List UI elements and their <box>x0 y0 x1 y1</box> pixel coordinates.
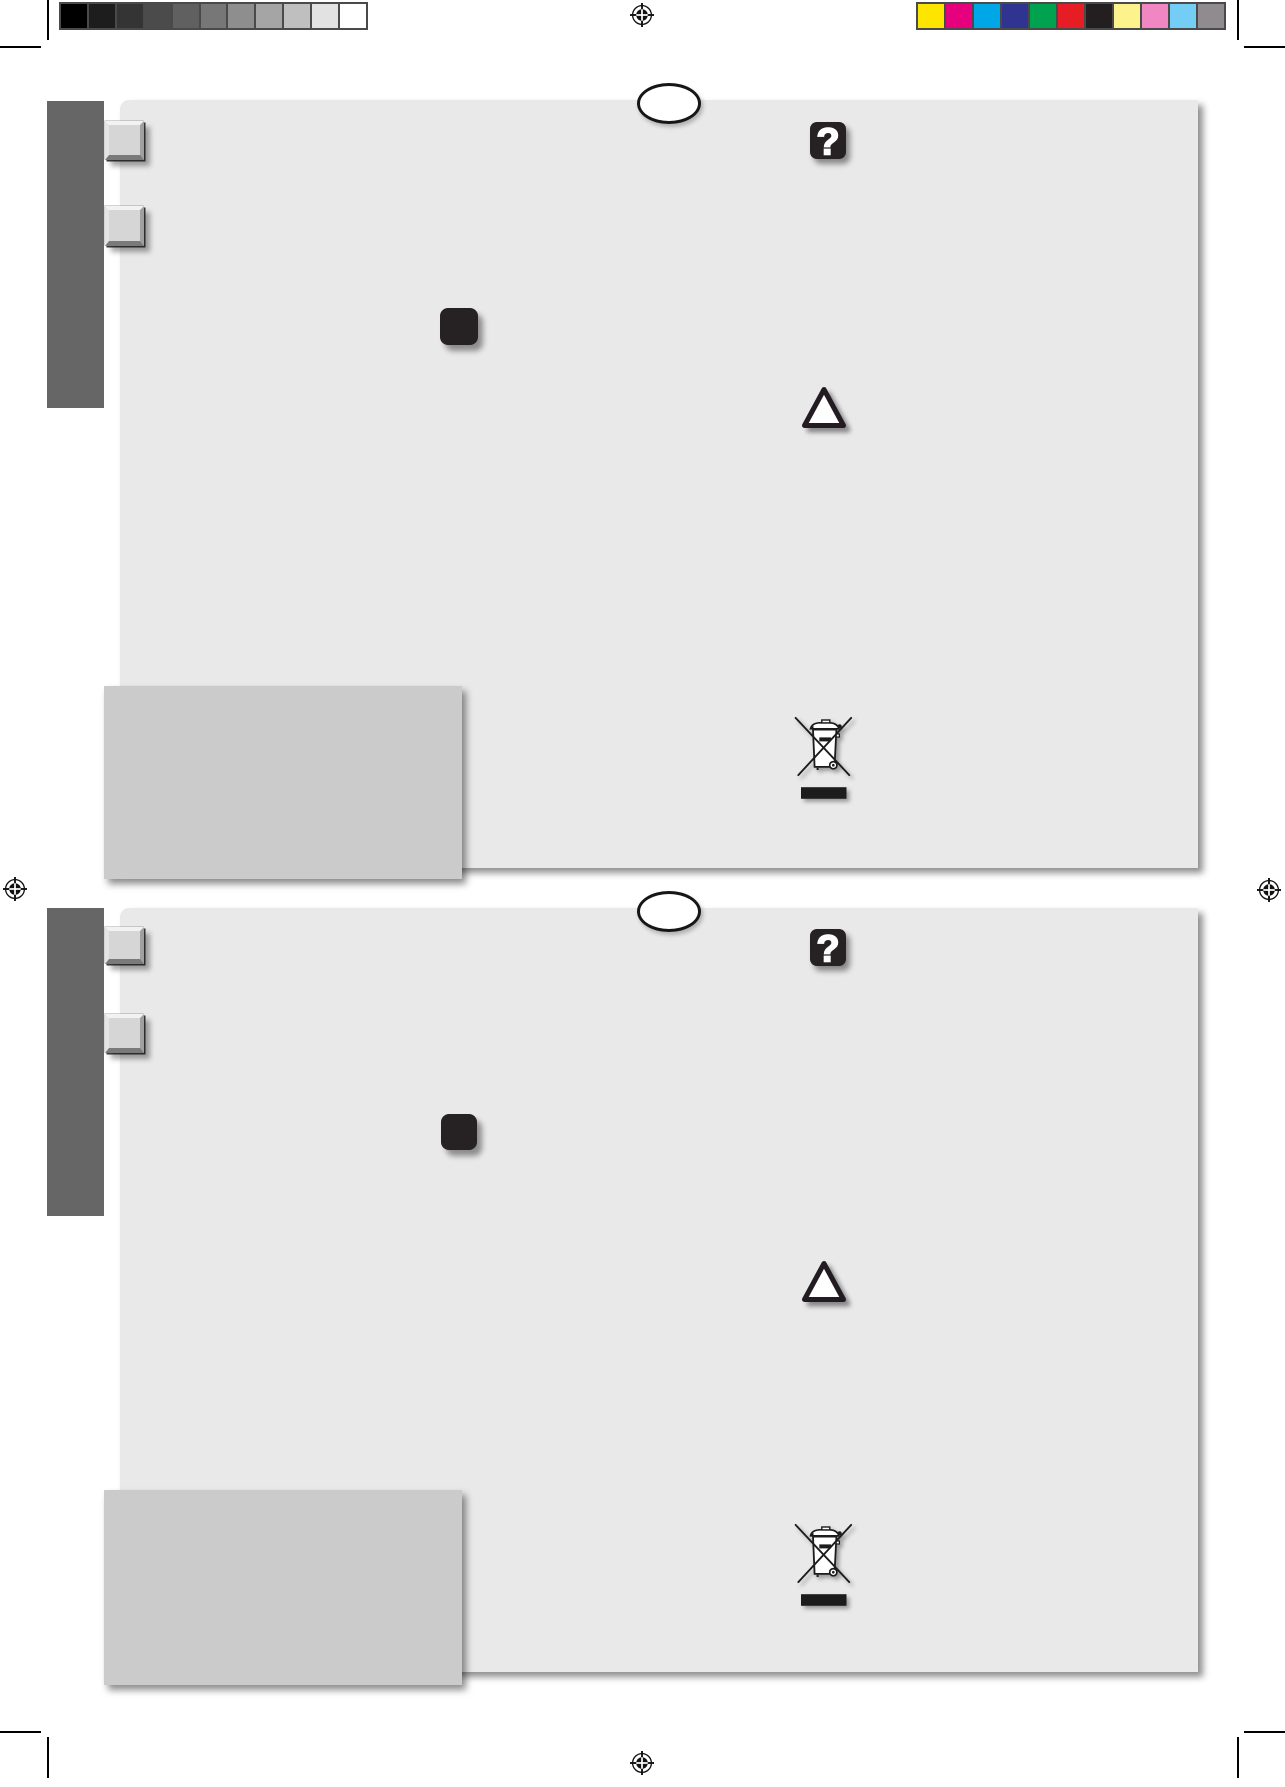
svg-text:?: ? <box>816 929 839 966</box>
svg-text:?: ? <box>816 122 839 159</box>
